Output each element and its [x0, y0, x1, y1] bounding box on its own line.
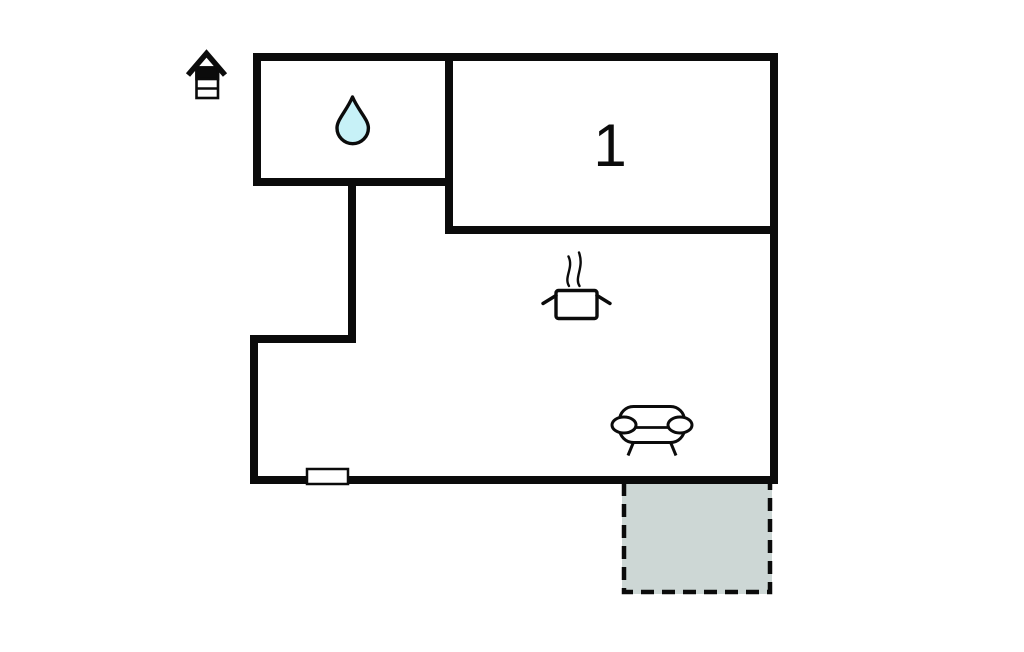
terrace-fill [622, 481, 772, 594]
house-icon [188, 54, 225, 99]
wall-top [253, 53, 778, 61]
sofa-icon [612, 407, 692, 456]
floorplan: 1 [0, 0, 1024, 652]
wall-right [770, 53, 778, 484]
wall-divider-vertical [445, 53, 453, 234]
walls [250, 53, 778, 484]
wall-notch-horizontal [250, 335, 356, 343]
terrace [622, 481, 772, 594]
water-drop-shape [337, 97, 368, 144]
wall-room1-bottom [445, 226, 778, 234]
wall-left-lower [250, 335, 258, 484]
wall-notch-vertical [348, 178, 356, 343]
room-label: 1 [593, 116, 626, 176]
steam-pot-icon [543, 253, 610, 319]
floorplan-canvas [0, 0, 1024, 652]
window-marker [307, 469, 348, 484]
wall-bathroom-left [253, 53, 261, 186]
water-drop-icon [337, 97, 368, 144]
